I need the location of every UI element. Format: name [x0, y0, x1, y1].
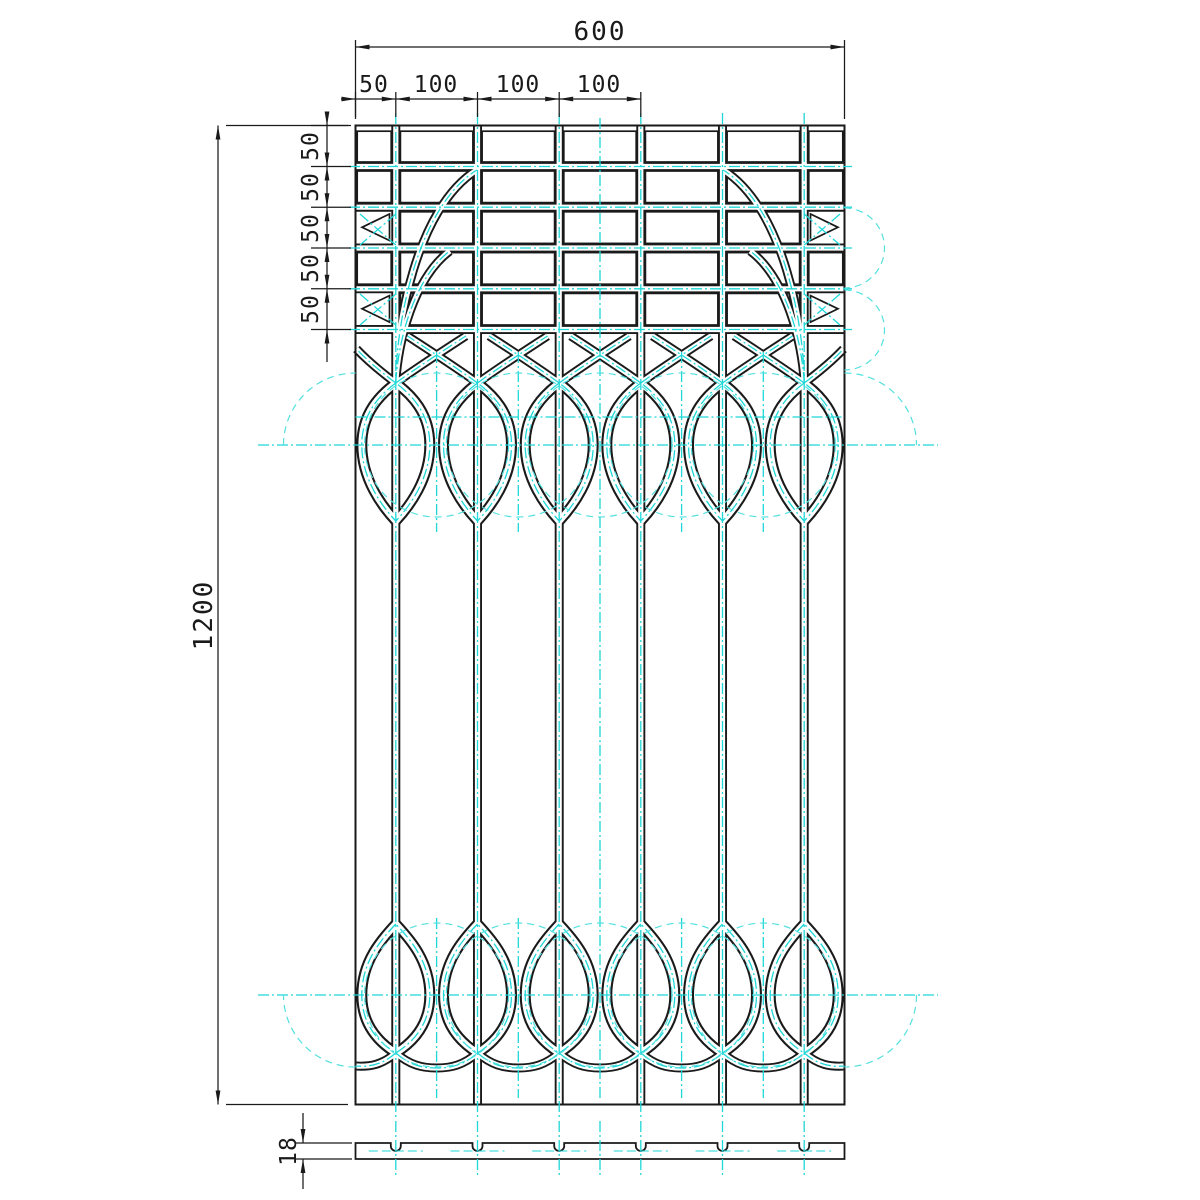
- dim-height-chain-label-1: 50: [298, 172, 324, 202]
- arrowhead: [325, 289, 330, 303]
- dim-total-width-label: 600: [574, 17, 627, 47]
- dim-total-height-label: 1200: [189, 580, 219, 651]
- construction-arc: [845, 995, 917, 1067]
- hole-outline: [357, 253, 391, 285]
- arrowhead: [831, 45, 845, 50]
- hole-outline: [357, 171, 391, 203]
- arrowhead: [396, 97, 410, 102]
- arrowhead: [478, 97, 492, 102]
- dim-width-chain-label-0: 50: [359, 72, 389, 98]
- dim-width-chain-label-2: 100: [496, 72, 541, 98]
- hole-outline: [809, 131, 843, 162]
- arrowhead: [325, 112, 330, 126]
- arrowhead: [559, 97, 573, 102]
- hole-outline: [482, 171, 554, 203]
- arrowhead: [216, 126, 221, 140]
- cad-sheet: 600 50 100 100 100 1200 50 50 50 50 50 1…: [0, 0, 1200, 1200]
- arrowhead: [325, 207, 330, 221]
- dim-section-thickness-label: 18: [276, 1136, 302, 1166]
- arrowhead: [325, 234, 330, 248]
- hole-outline: [809, 253, 843, 285]
- hole-outline: [727, 131, 800, 162]
- dim-height-chain-label-0: 50: [298, 131, 324, 161]
- dim-height-chain-label-4: 50: [298, 294, 324, 324]
- dim-height-chain-label-3: 50: [298, 253, 324, 283]
- hole-outline: [482, 212, 554, 244]
- arrowhead: [325, 153, 330, 167]
- arrowhead: [325, 330, 330, 344]
- hole-outline: [645, 212, 718, 244]
- hole-outline: [482, 253, 554, 285]
- construction-arc: [284, 373, 356, 445]
- section-view: [356, 1121, 845, 1178]
- construction-arc: [284, 995, 356, 1067]
- hole-outline: [482, 293, 554, 325]
- arrowhead: [627, 97, 641, 102]
- construction-arc: [845, 373, 917, 445]
- arrowhead: [325, 193, 330, 207]
- arrowhead: [356, 45, 370, 50]
- arrowhead: [325, 248, 330, 262]
- arrowhead: [342, 97, 356, 102]
- hole-outline: [482, 131, 554, 162]
- arrowhead: [325, 167, 330, 181]
- hole-outline: [645, 171, 718, 203]
- arrowhead: [464, 97, 478, 102]
- arrowhead: [216, 1091, 221, 1105]
- dim-width-chain-label-3: 100: [577, 72, 622, 98]
- dim-width-chain-label-1: 100: [414, 72, 459, 98]
- arrowhead: [545, 97, 559, 102]
- hole-outline: [400, 131, 473, 162]
- hole-outline: [809, 171, 843, 203]
- grille-panel-drawing: 600 50 100 100 100 1200 50 50 50 50 50 1…: [0, 0, 1200, 1200]
- hole-outline: [645, 293, 718, 325]
- hole-outline: [357, 131, 391, 162]
- arrowhead: [325, 275, 330, 289]
- hole-outline: [645, 253, 718, 285]
- hole-outline: [645, 131, 718, 162]
- drawing-geometry: [258, 113, 938, 1178]
- dim-height-chain-label-2: 50: [298, 213, 324, 243]
